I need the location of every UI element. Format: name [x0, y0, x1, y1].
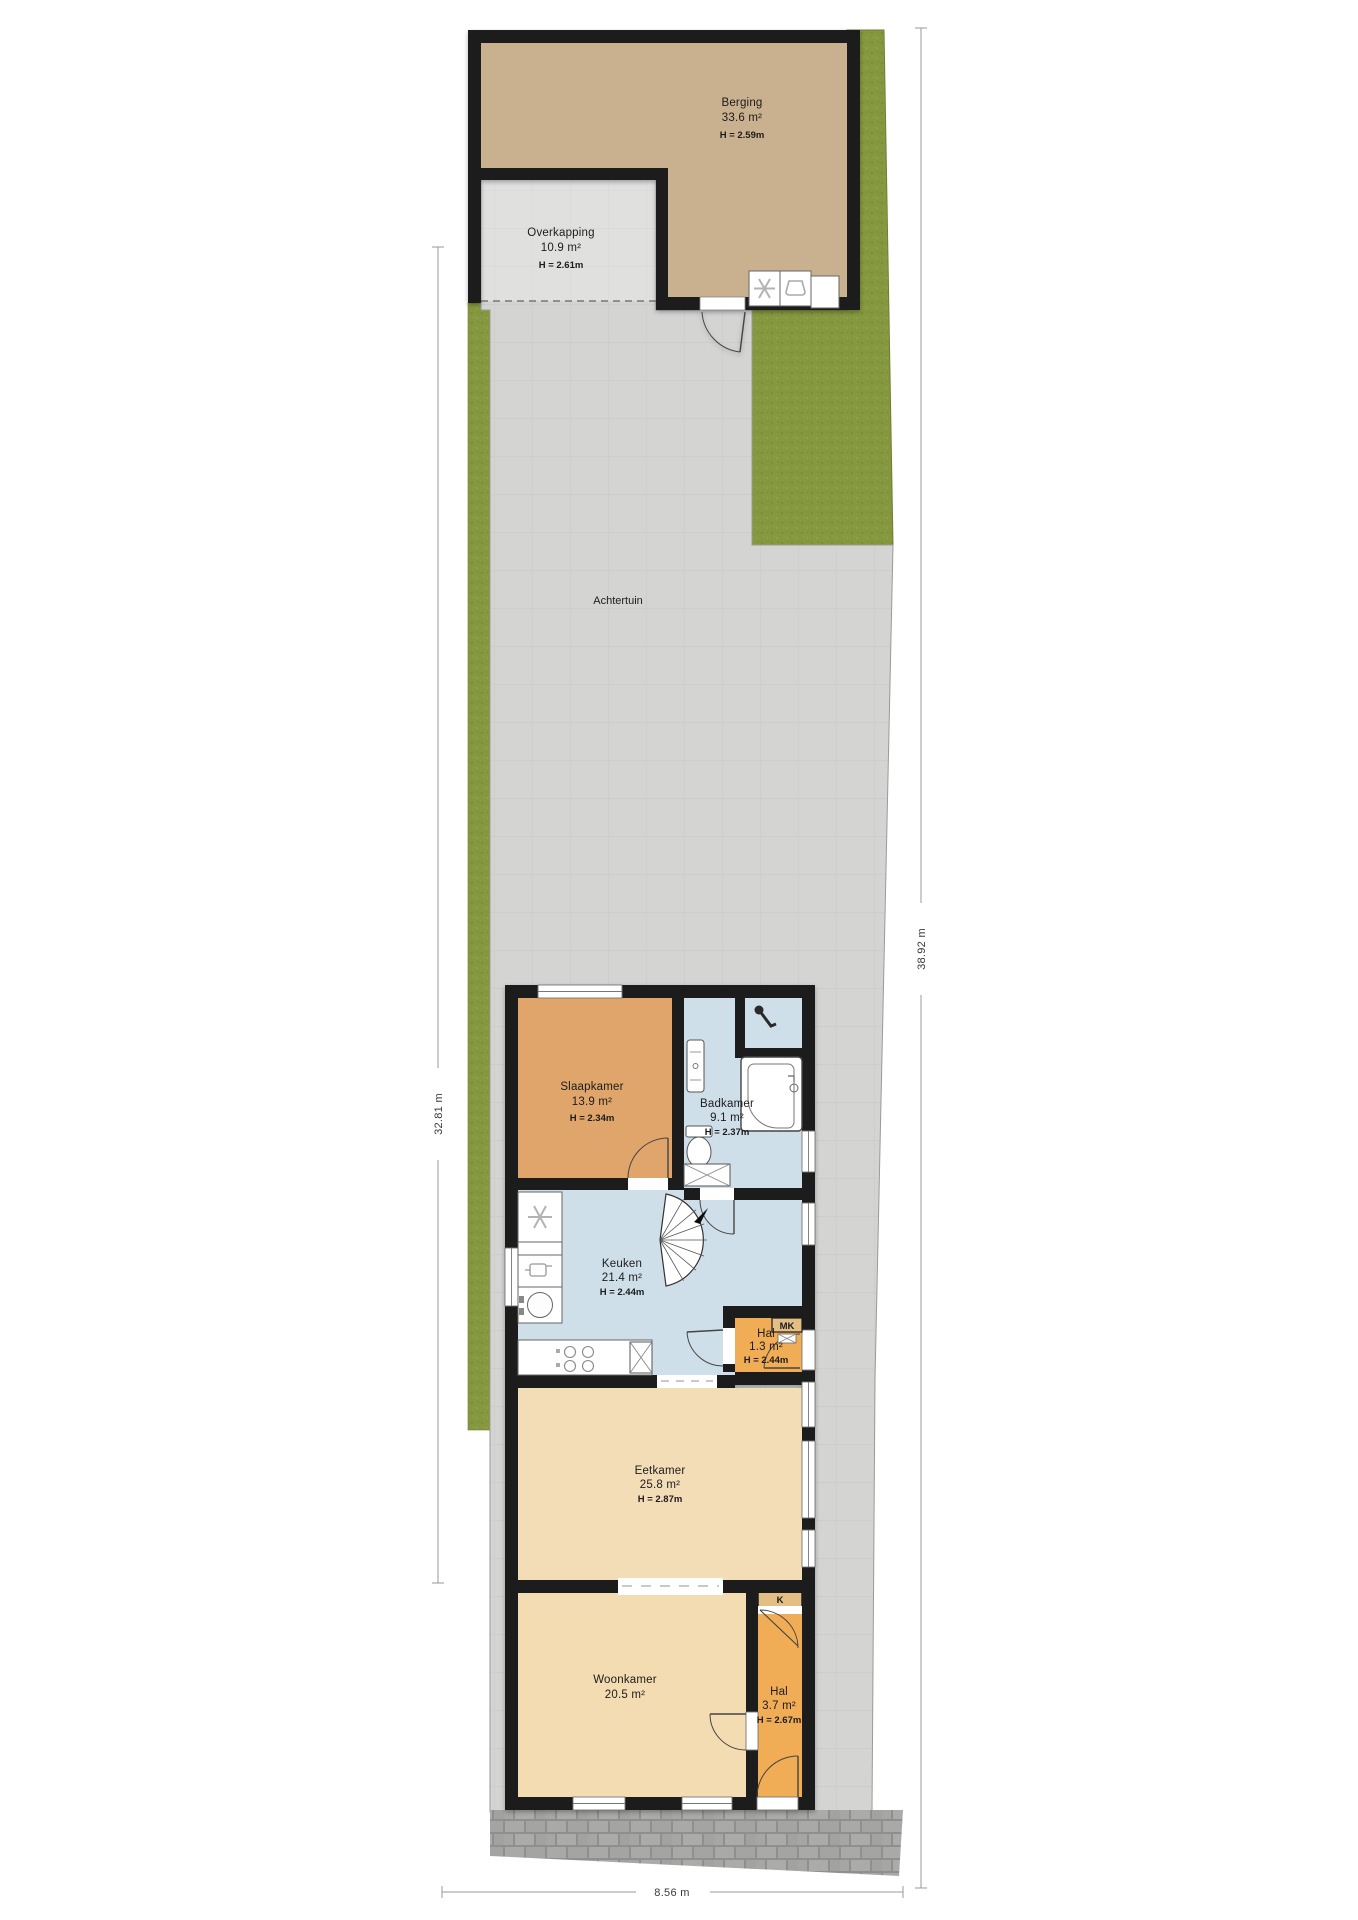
- label-hal-achter-height: H = 2.44m: [744, 1355, 789, 1366]
- label-badkamer-name: Badkamer: [700, 1098, 754, 1110]
- dishwasher-icon: [518, 1255, 562, 1287]
- dryer-icon: [780, 271, 811, 306]
- label-woonkamer-name: Woonkamer: [593, 1674, 657, 1686]
- label-slaapkamer-area: 13.9 m²: [572, 1096, 612, 1108]
- house: [505, 985, 815, 1810]
- sink-icon: [518, 1287, 562, 1323]
- berging-door-opening: [700, 297, 745, 310]
- label-overkapping-name: Overkapping: [527, 227, 594, 239]
- window-eetkamer-right-2: [802, 1441, 815, 1518]
- label-overkapping-area: 10.9 m²: [541, 242, 581, 254]
- window-badkamer-right: [802, 1131, 815, 1172]
- label-hal-voor-area: 3.7 m²: [762, 1700, 796, 1712]
- label-overkapping-height: H = 2.61m: [539, 260, 584, 271]
- label-meterkast: MK: [780, 1321, 795, 1332]
- cabinet-box: [811, 276, 839, 308]
- window-eetkamer-right-1: [802, 1382, 815, 1427]
- label-hal-achter-name: Hal: [757, 1328, 775, 1340]
- label-slaapkamer-name: Slaapkamer: [560, 1081, 623, 1093]
- vanity-icon: [684, 1164, 730, 1186]
- bathtub-icon: [741, 1057, 802, 1131]
- counter-segment: [518, 1242, 562, 1255]
- window-eetkamer-right-3: [802, 1530, 815, 1567]
- label-keuken-area: 21.4 m²: [602, 1272, 642, 1284]
- label-kast: K: [777, 1595, 784, 1606]
- overkapping-floor: [481, 180, 656, 301]
- window-slaapkamer-top: [538, 985, 622, 998]
- window-woonkamer-bottom-2: [682, 1797, 732, 1810]
- window-woonkamer-bottom-1: [573, 1797, 625, 1810]
- fridge-icon: [518, 1192, 562, 1242]
- label-berging-area: 33.6 m²: [722, 112, 762, 124]
- label-keuken-height: H = 2.44m: [600, 1287, 645, 1298]
- washing-machine-icon: [749, 271, 780, 306]
- floorplan-page: Berging 33.6 m² H = 2.59m Overkapping 10…: [0, 0, 1358, 1920]
- window-keuken-left: [505, 1248, 518, 1306]
- dimension-right-text: 38.92 m: [916, 928, 928, 970]
- label-badkamer-height: H = 2.37m: [705, 1127, 750, 1138]
- label-slaapkamer-height: H = 2.34m: [570, 1113, 615, 1124]
- label-eetkamer-area: 25.8 m²: [640, 1479, 680, 1491]
- dimension-left-text: 32.81 m: [433, 1093, 445, 1135]
- floorplan-svg: Berging 33.6 m² H = 2.59m Overkapping 10…: [0, 0, 1358, 1920]
- label-eetkamer-height: H = 2.87m: [638, 1494, 683, 1505]
- label-hal-voor-height: H = 2.67m: [757, 1715, 802, 1726]
- label-badkamer-area: 9.1 m²: [710, 1112, 744, 1124]
- label-eetkamer-name: Eetkamer: [635, 1465, 686, 1477]
- label-hal-voor-name: Hal: [770, 1686, 788, 1698]
- label-berging-height: H = 2.59m: [720, 130, 765, 141]
- label-hal-achter-area: 1.3 m²: [749, 1341, 783, 1353]
- kitchen-cabinet-icon: [630, 1342, 652, 1373]
- label-berging-name: Berging: [721, 97, 762, 109]
- label-keuken-name: Keuken: [602, 1258, 642, 1270]
- label-woonkamer-area: 20.5 m²: [605, 1689, 645, 1701]
- grass-left-strip: [468, 303, 490, 1430]
- window-keuken-right: [802, 1203, 815, 1245]
- label-achtertuin: Achtertuin: [593, 595, 643, 607]
- radiator-icon: [687, 1040, 704, 1092]
- dimension-bottom-text: 8.56 m: [654, 1887, 689, 1899]
